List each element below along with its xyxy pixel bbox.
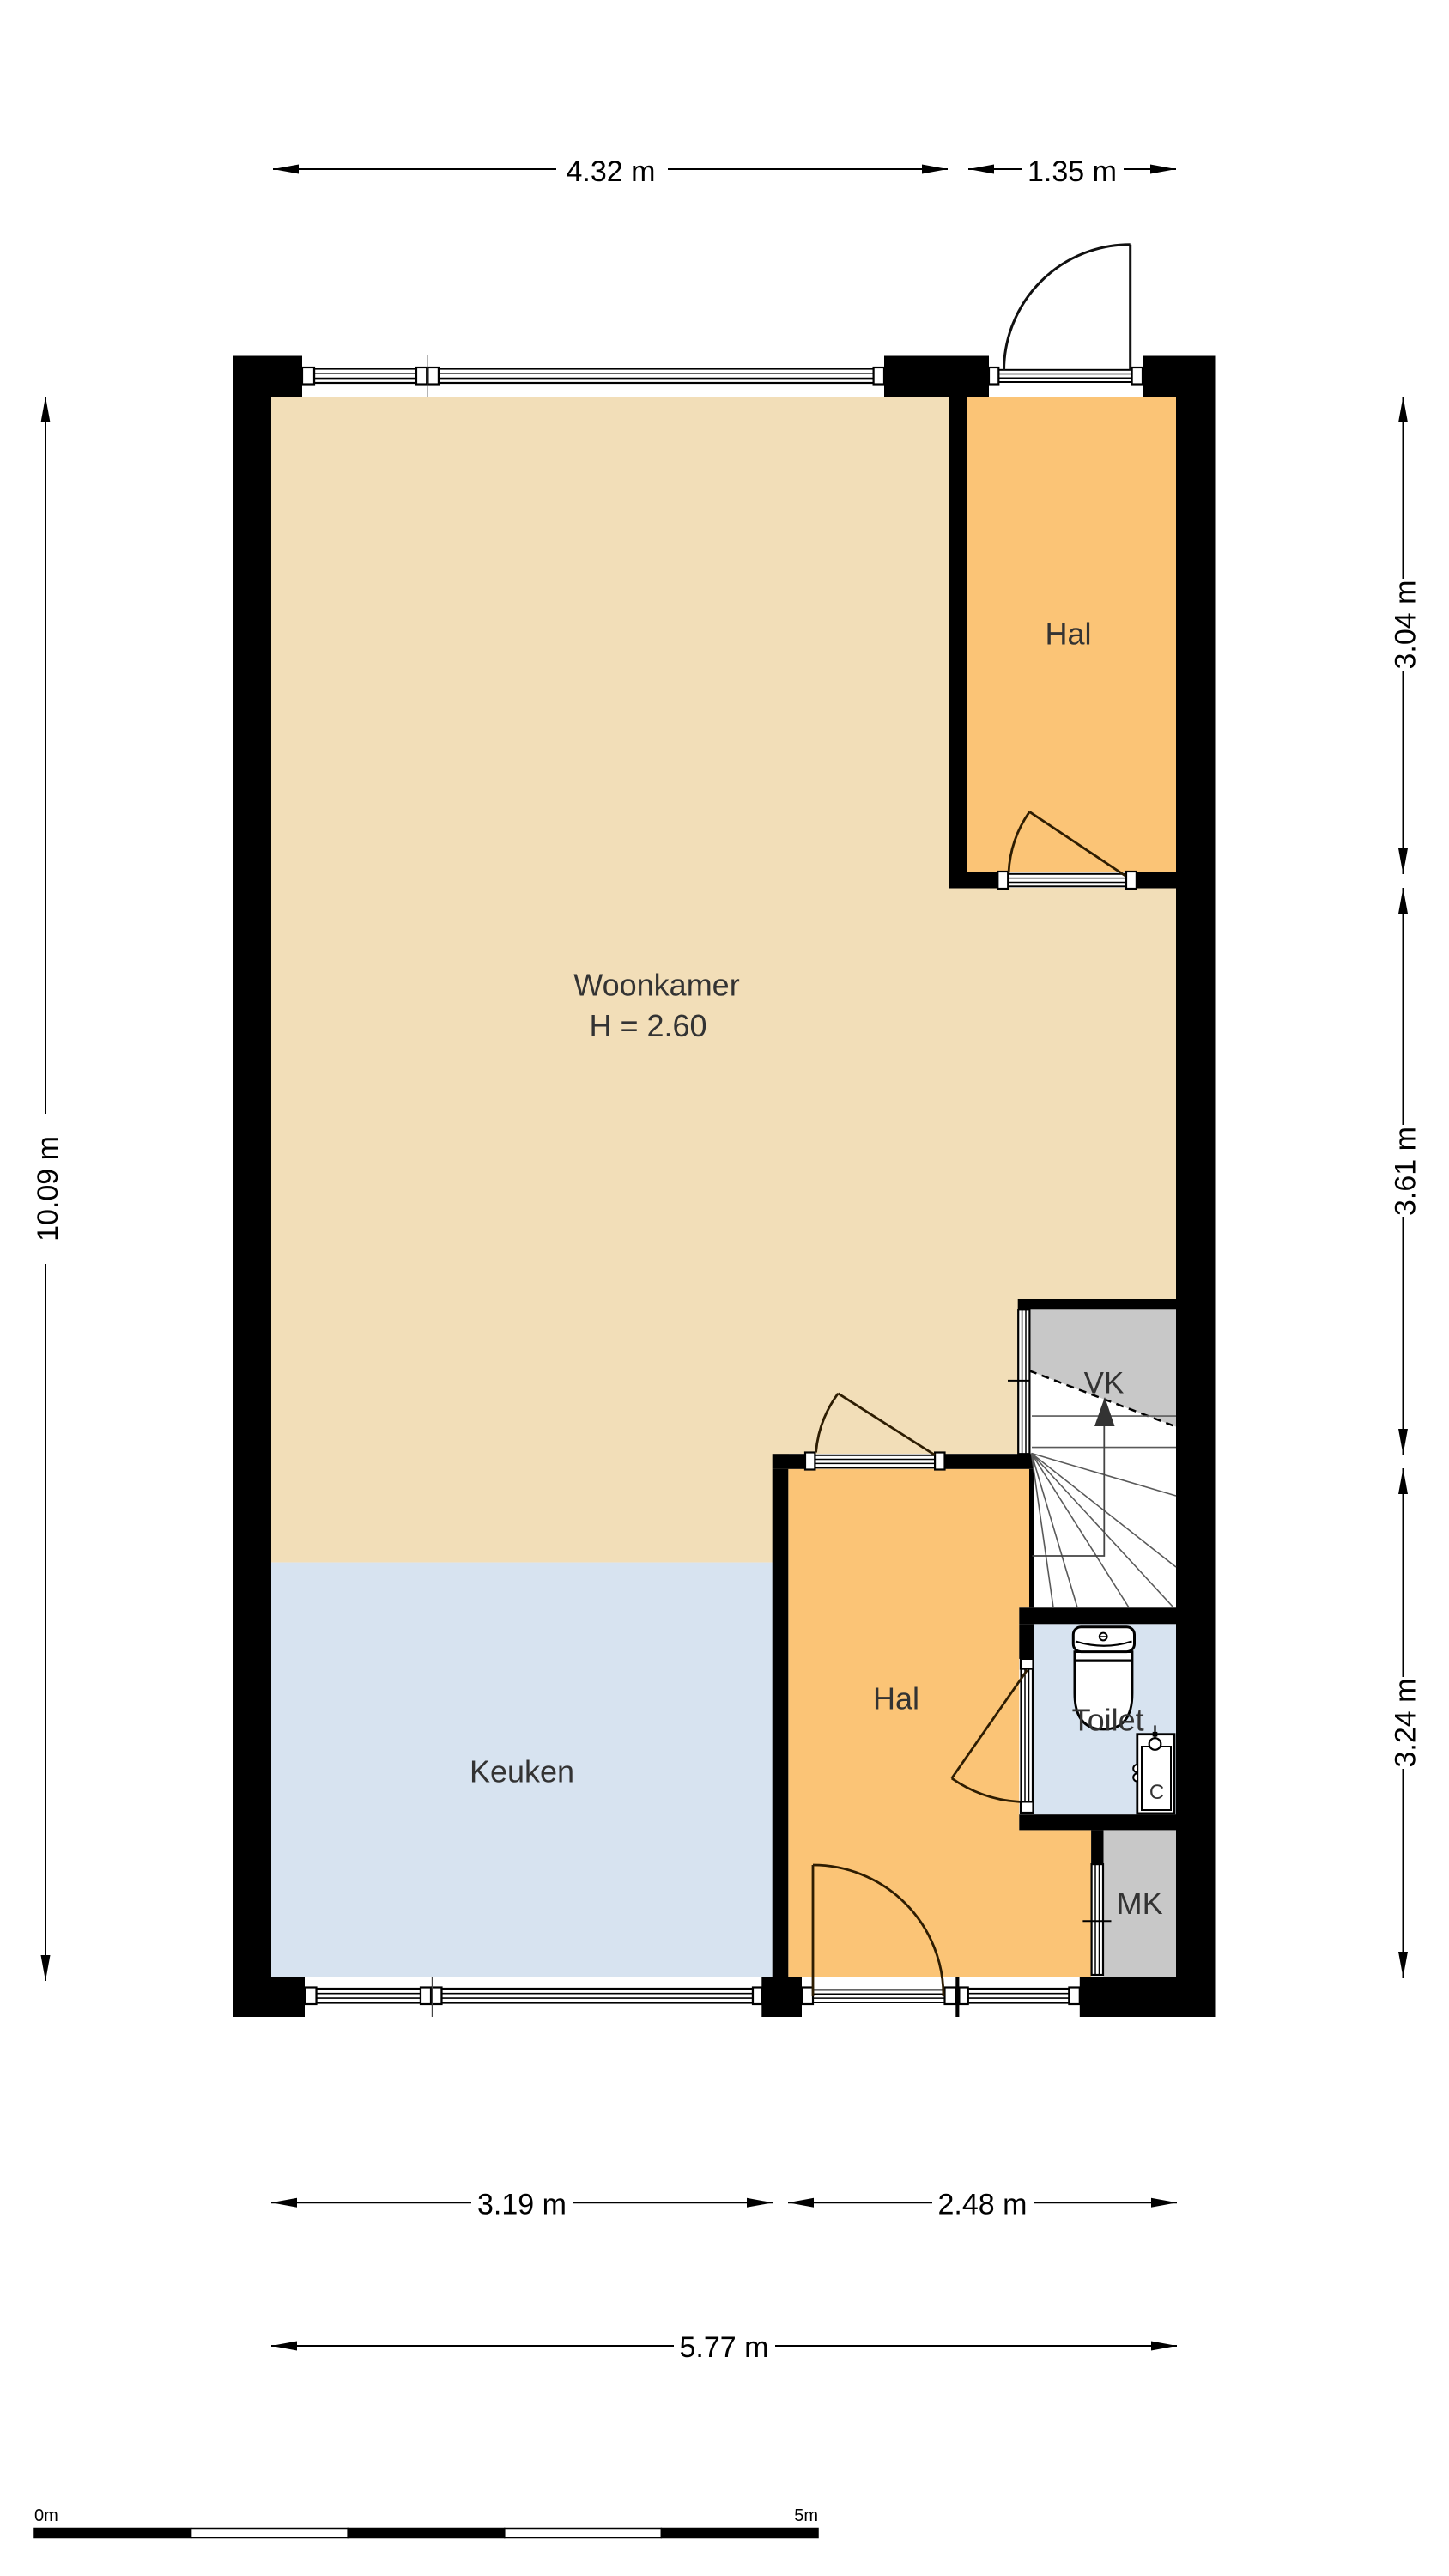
svg-text:Hal: Hal [1045,617,1091,652]
svg-text:Keuken: Keuken [470,1754,574,1789]
svg-text:Hal: Hal [873,1681,919,1716]
svg-text:3.19 m: 3.19 m [477,2189,567,2221]
svg-text:Woonkamer: Woonkamer [573,968,739,1003]
svg-text:4.32 m: 4.32 m [567,155,656,188]
svg-text:2.48 m: 2.48 m [938,2189,1028,2221]
svg-text:3.61 m: 3.61 m [1390,1127,1422,1216]
svg-text:C: C [1149,1781,1164,1804]
svg-text:VK: VK [1084,1367,1125,1400]
svg-text:1.35 m: 1.35 m [1028,155,1117,188]
svg-text:5.77 m: 5.77 m [680,2331,769,2364]
svg-text:MK: MK [1117,1886,1163,1921]
svg-text:3.04 m: 3.04 m [1390,580,1422,670]
svg-text:10.09 m: 10.09 m [32,1136,64,1242]
svg-text:Toilet: Toilet [1072,1703,1144,1738]
svg-text:5m: 5m [794,2506,818,2525]
svg-text:H = 2.60: H = 2.60 [589,1008,706,1043]
svg-text:0m: 0m [34,2506,58,2525]
svg-text:3.24 m: 3.24 m [1390,1679,1422,1768]
